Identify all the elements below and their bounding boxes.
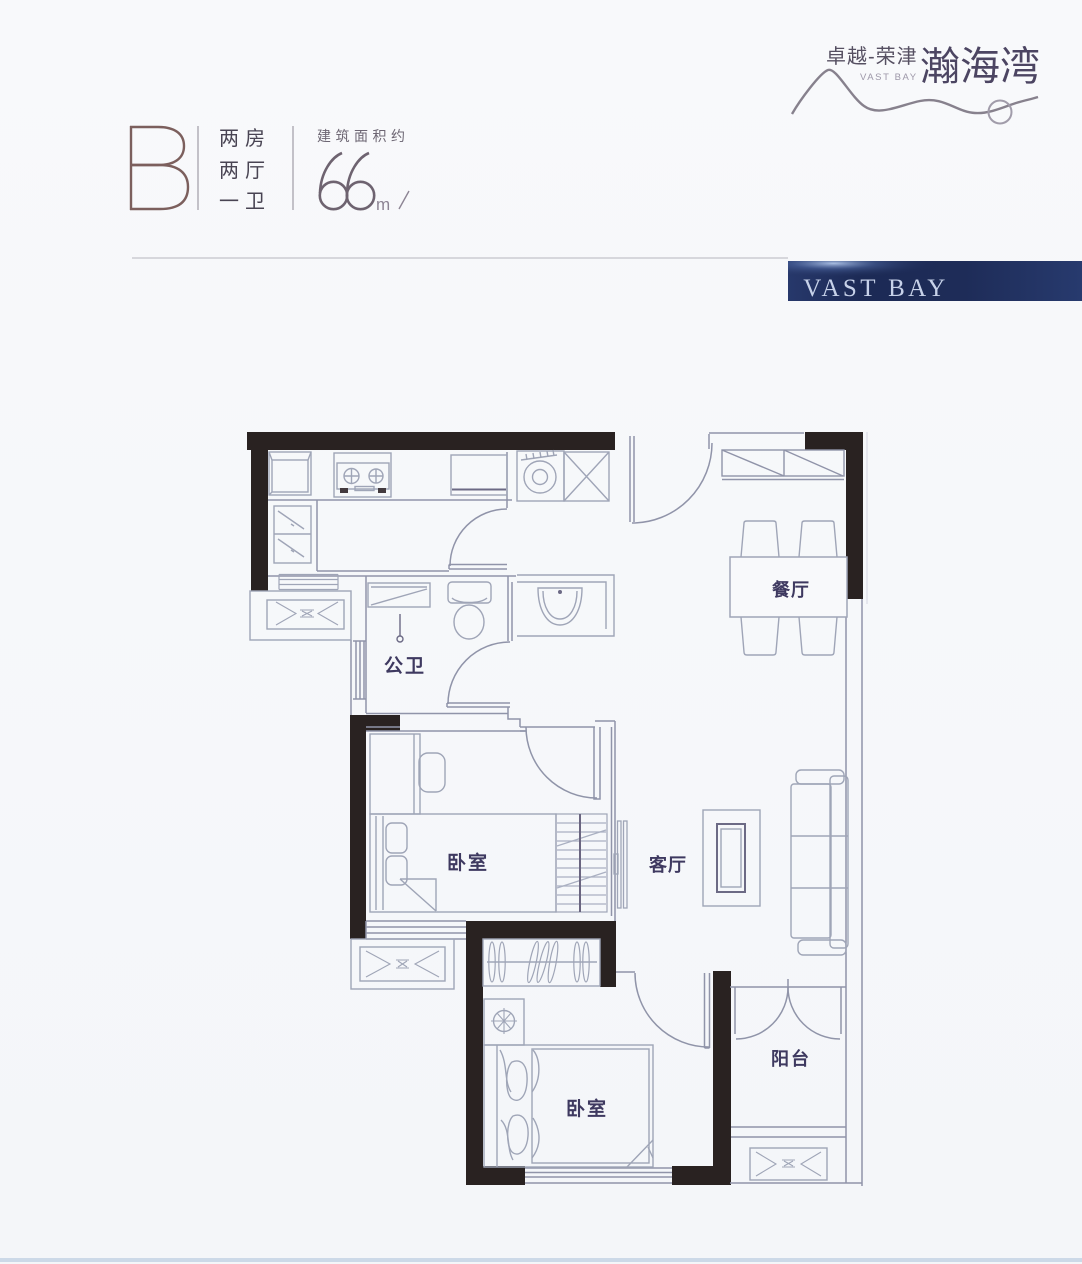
svg-text:两厅: 两厅 xyxy=(219,160,271,182)
svg-text:卓越-荣津: 卓越-荣津 xyxy=(826,45,918,68)
svg-text:卧室: 卧室 xyxy=(566,1097,608,1120)
svg-text:客厅: 客厅 xyxy=(649,854,687,875)
svg-text:VAST BAY: VAST BAY xyxy=(803,275,949,302)
svg-text:阳台: 阳台 xyxy=(771,1048,811,1069)
svg-text:卧室: 卧室 xyxy=(447,851,489,874)
svg-text:m: m xyxy=(376,195,390,214)
svg-text:两房: 两房 xyxy=(219,127,271,150)
svg-text:建筑面积约: 建筑面积约 xyxy=(317,128,410,144)
svg-text:餐厅: 餐厅 xyxy=(771,579,810,600)
svg-text:VAST BAY: VAST BAY xyxy=(860,72,918,83)
svg-text:公卫: 公卫 xyxy=(384,655,426,677)
svg-text:一卫: 一卫 xyxy=(219,191,271,213)
svg-text:瀚海湾: 瀚海湾 xyxy=(920,45,1040,89)
